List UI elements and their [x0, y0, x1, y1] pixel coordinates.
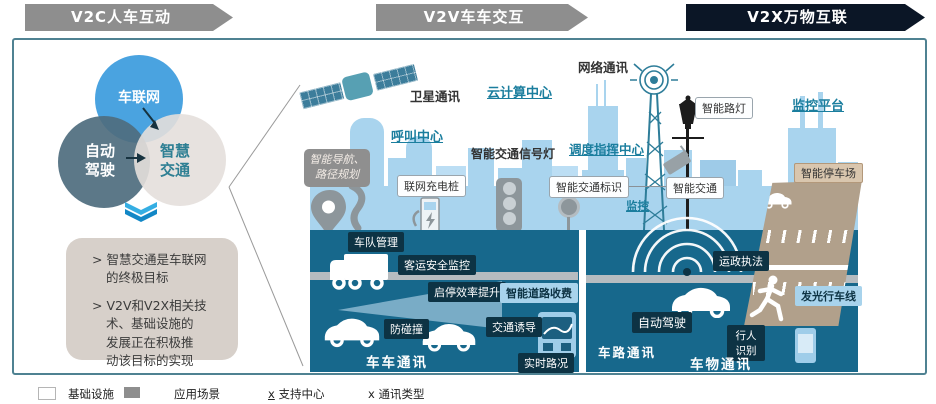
label-v2i-comm: 车物通讯	[690, 353, 752, 373]
double-chevron-down-icon	[124, 202, 158, 223]
v2x-infographic: V2C人车互动 V2V车车交互 V2X万物互联 车联网 自动驾驶 智慧交通 > …	[0, 0, 936, 404]
label-traffic-sign: 智能交通标识	[549, 176, 629, 198]
banner-v2v: V2V车车交互	[376, 4, 588, 31]
legend-comm-label: 通讯类型	[378, 387, 424, 401]
note-item: > V2V和V2X相关技术、基础设施的 发展正在积极推 动该目标的实现	[92, 297, 208, 370]
label-network-comm: 网络通讯	[578, 57, 628, 76]
label-monitor-platform: 监控平台	[792, 95, 844, 114]
pedestrian-icon	[748, 274, 792, 326]
label-law-enforcement: 运政执法	[713, 251, 769, 271]
traffic-display-icon	[538, 312, 576, 358]
label-cloud-center: 云计算中心	[487, 82, 552, 101]
label-glow-lane: 发光行车线	[795, 286, 862, 306]
label-stop-start: 启停效率提升	[428, 282, 506, 302]
label-call-center: 呼叫中心	[391, 126, 443, 145]
road-sign-icon	[558, 196, 580, 218]
banner-v2c: V2C人车互动	[25, 4, 233, 31]
legend-infra-swatch	[38, 387, 56, 400]
label-smart-traffic: 智能交通	[666, 177, 724, 199]
label-charging-pile: 联网充电桩	[397, 175, 466, 197]
car-icon	[322, 312, 382, 348]
legend-comm-x: x	[368, 387, 375, 401]
label-auto-driving: 自动驾驶	[632, 312, 692, 333]
legend-infra-label: 基础设施	[68, 386, 114, 402]
label-signal-light: 智能交通信号灯	[471, 145, 555, 162]
band-divider	[579, 230, 586, 372]
mobile-phone-icon	[795, 328, 816, 363]
note-item: > 智慧交通是车联网的终极目标	[92, 251, 208, 287]
label-v2v-comm: 车车通讯	[366, 351, 428, 371]
label-satellite-comm: 卫星通讯	[410, 86, 460, 105]
label-nav-planning: 智能导航、路径规划	[304, 149, 370, 187]
label-road-toll: 智能道路收费	[500, 283, 578, 303]
legend-support-x: x	[268, 387, 275, 401]
label-fleet-mgmt: 车队管理	[348, 232, 404, 252]
charging-pile-icon	[408, 194, 444, 234]
note-text: V2V和V2X相关技术、基础设施的 发展正在积极推 动该目标的实现	[106, 298, 207, 367]
label-realtime-traffic: 实时路况	[518, 353, 574, 373]
label-monitor: 监控	[626, 198, 649, 214]
label-smart-parking: 智能停车场	[794, 163, 863, 183]
legend-comm-item: x 通讯类型	[368, 386, 424, 402]
legend-support-label: 支持中心	[278, 387, 324, 401]
note-text: 智慧交通是车联网的终极目标	[106, 252, 206, 285]
legend-app-swatch	[124, 387, 140, 398]
venn-arrows	[55, 50, 235, 210]
label-traffic-guidance: 交通诱导	[486, 317, 542, 337]
building-spire	[596, 84, 598, 108]
building-spire	[604, 80, 606, 108]
label-anti-collision: 防碰撞	[384, 319, 429, 339]
truck-icon	[328, 250, 388, 298]
road-sign-pole	[567, 217, 570, 231]
legend-support-item: x 支持中心	[268, 386, 324, 402]
label-dispatch-center: 调度指挥中心	[569, 139, 644, 158]
summary-note-box: > 智慧交通是车联网的终极目标 > V2V和V2X相关技术、基础设施的 发展正在…	[66, 238, 238, 360]
label-smart-lamp: 智能路灯	[695, 97, 753, 119]
label-v2r-comm: 车路通讯	[598, 342, 656, 361]
legend-app-label: 应用场景	[174, 386, 220, 402]
label-passenger-safety: 客运安全监控	[398, 255, 476, 275]
banner-v2x: V2X万物互联	[686, 4, 925, 31]
traffic-light-icon	[496, 178, 522, 232]
